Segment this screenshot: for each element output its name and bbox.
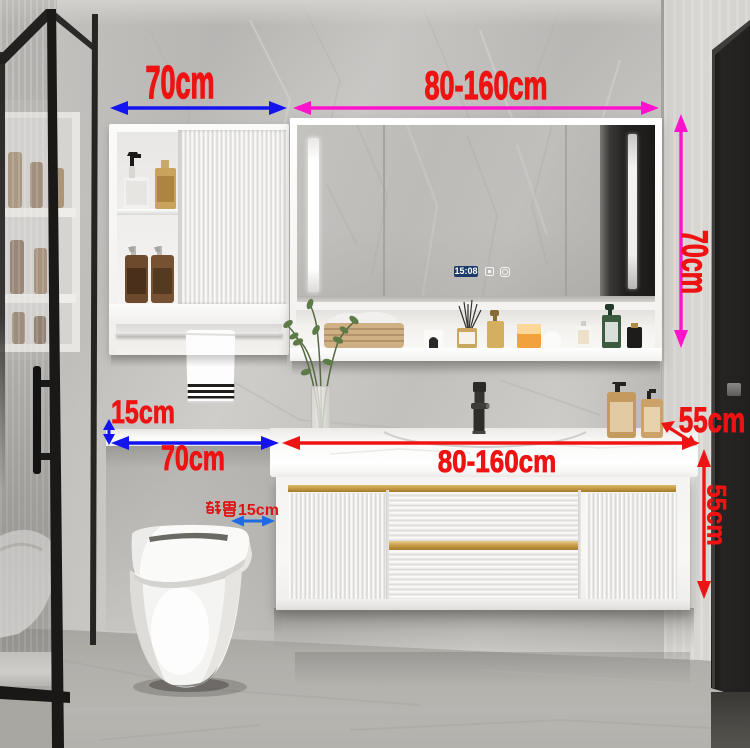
svg-text:15cm: 15cm	[238, 502, 279, 518]
